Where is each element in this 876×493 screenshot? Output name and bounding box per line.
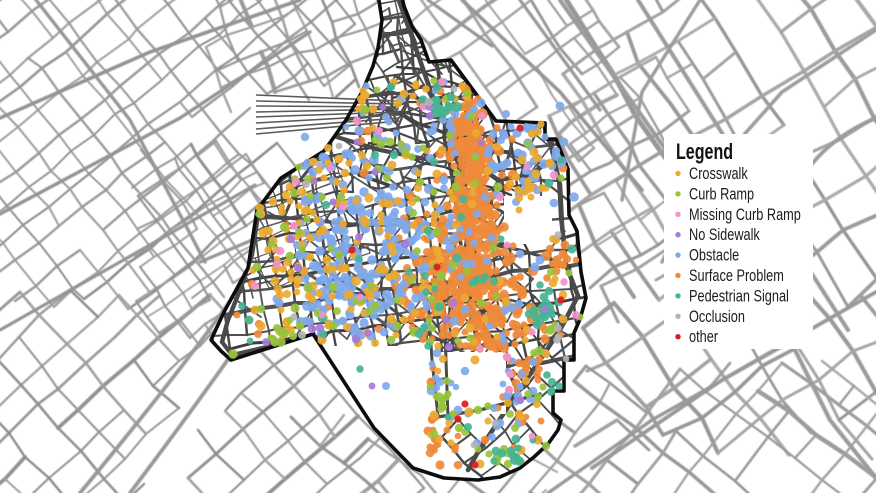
svg-text:Legend: Legend	[676, 141, 733, 165]
svg-text:other: other	[689, 327, 718, 346]
svg-text:Pedestrian Signal: Pedestrian Signal	[689, 287, 789, 306]
svg-text:Curb Ramp: Curb Ramp	[689, 185, 754, 204]
svg-text:Crosswalk: Crosswalk	[689, 164, 748, 183]
svg-text:No Sidewalk: No Sidewalk	[689, 225, 760, 244]
svg-text:Obstacle: Obstacle	[689, 246, 739, 265]
svg-text:Surface Problem: Surface Problem	[689, 266, 784, 285]
svg-text:Occlusion: Occlusion	[689, 307, 745, 326]
svg-text:Missing Curb Ramp: Missing Curb Ramp	[689, 205, 801, 224]
